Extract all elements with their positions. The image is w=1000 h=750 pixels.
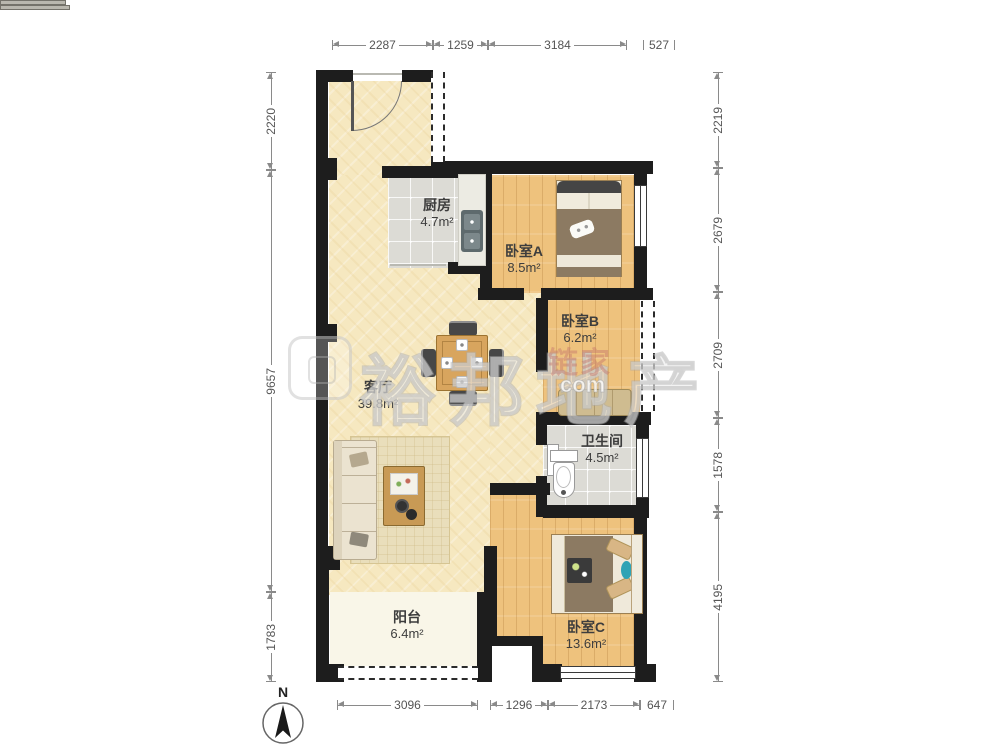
dashed-boundary — [641, 301, 655, 411]
dim-line — [574, 45, 626, 46]
dim-label: 1296 — [503, 698, 536, 712]
wall-corner — [634, 664, 656, 682]
dim-right-3: 2709 — [711, 292, 725, 418]
bed-band — [557, 255, 621, 267]
dim-line — [271, 593, 272, 621]
wall — [316, 180, 328, 550]
wall — [316, 566, 329, 678]
dim-line — [338, 705, 391, 706]
dim-label: 1783 — [264, 621, 278, 654]
dim-right-1: 2219 — [711, 72, 725, 168]
coffee-table-symbol — [383, 466, 425, 526]
dim-line — [399, 45, 432, 46]
dim-label: 2709 — [711, 339, 725, 372]
sofa-back — [334, 441, 342, 559]
dim-line — [271, 171, 272, 365]
dim-line — [718, 513, 719, 581]
dim-label: 1259 — [444, 38, 477, 52]
dim-left-3: 1783 — [264, 592, 278, 682]
toilet-symbol — [553, 462, 575, 498]
dim-label: 2220 — [264, 105, 278, 138]
dim-line — [477, 45, 487, 46]
headboard — [631, 535, 642, 613]
dashed-boundary — [431, 72, 445, 162]
room-name: 卧室C — [566, 618, 606, 636]
toilet-bowl — [556, 466, 571, 488]
window — [560, 666, 636, 679]
sliding-door-panel — [0, 5, 70, 10]
dim-line — [549, 705, 578, 706]
tray-symbol — [390, 473, 418, 495]
dim-left-2: 9657 — [264, 170, 278, 592]
floor-plan-canvas: 厨房 4.7m² 卧室A 8.5m² 卧室B 6.2m² 客厅 39.8m² 卫… — [0, 0, 1000, 750]
dim-line — [718, 246, 719, 291]
dim-line — [718, 371, 719, 417]
room-label-kitchen: 厨房 4.7m² — [420, 196, 453, 231]
bed-foot-band — [553, 536, 565, 612]
chair-symbol — [449, 391, 477, 406]
room-label-bedroom-b: 卧室B 6.2m² — [561, 312, 599, 347]
plate-symbol — [441, 357, 453, 369]
bed-pillows — [557, 193, 621, 209]
room-name: 卧室A — [505, 242, 543, 260]
dim-top-4: 527 — [643, 38, 675, 52]
room-label-bedroom-c: 卧室C 13.6m² — [566, 618, 606, 653]
room-name: 卧室B — [561, 312, 599, 330]
room-label-balcony: 阳台 6.4m² — [390, 608, 423, 643]
room-area: 6.2m² — [561, 330, 599, 347]
vase-symbol — [406, 509, 417, 520]
dim-right-4: 1578 — [711, 418, 725, 512]
dim-line — [718, 293, 719, 339]
dim-label: 4195 — [711, 581, 725, 614]
dim-line — [333, 45, 366, 46]
dim-line — [535, 705, 547, 706]
dim-line — [718, 169, 719, 214]
dim-line — [271, 653, 272, 681]
north-arrow-compass: N — [260, 684, 306, 750]
balcony-open-edge — [338, 666, 478, 680]
room-area: 13.6m² — [566, 636, 606, 653]
sink-basin — [464, 214, 480, 230]
room-name: 阳台 — [390, 608, 423, 626]
bed-tray-symbol — [567, 558, 592, 583]
north-label: N — [260, 684, 306, 700]
window — [634, 185, 647, 247]
room-area: 6.4m² — [390, 626, 423, 643]
exterior-notch — [492, 644, 532, 682]
plate-symbol — [456, 339, 468, 351]
dim-label: 3184 — [541, 38, 574, 52]
wall — [431, 161, 653, 174]
dim-line — [491, 705, 503, 706]
wall — [402, 70, 433, 82]
sofa-pillow — [349, 532, 369, 548]
dim-label: 1578 — [711, 449, 725, 482]
dim-line — [489, 45, 541, 46]
dim-label: 2173 — [578, 698, 611, 712]
room-name: 厨房 — [420, 196, 453, 214]
dim-right-5: 4195 — [711, 512, 725, 682]
bedroom-b-cabinet-symbol — [558, 389, 632, 416]
room-name: 卫生间 — [581, 432, 623, 450]
dim-bottom-2: 1296 — [490, 698, 548, 712]
wall — [536, 425, 547, 445]
dim-label: 2287 — [366, 38, 399, 52]
room-name: 客厅 — [358, 378, 398, 396]
dim-top-1: 2287 — [332, 38, 433, 52]
kitchen-door-threshold — [390, 264, 446, 266]
wall — [541, 288, 653, 300]
double-bed-symbol — [551, 534, 643, 614]
dim-line — [718, 481, 719, 511]
bed-symbol — [556, 180, 622, 277]
room-label-living: 客厅 39.8m² — [358, 378, 398, 413]
dim-line — [718, 73, 719, 104]
dim-tick — [266, 681, 276, 682]
room-label-bathroom: 卫生间 4.5m² — [581, 432, 623, 467]
door-threshold — [353, 73, 402, 75]
dim-tick — [673, 700, 674, 710]
dim-line — [434, 45, 444, 46]
dim-line — [610, 705, 639, 706]
entry-door-leaf — [351, 81, 354, 131]
chair-symbol — [421, 349, 436, 377]
room-area: 39.8m² — [358, 396, 398, 413]
wall-column — [316, 158, 337, 180]
compass-icon — [260, 700, 306, 746]
dim-line — [718, 419, 719, 449]
dim-label: 647 — [644, 698, 670, 712]
room-area: 8.5m² — [505, 260, 543, 277]
sofa-symbol — [333, 440, 377, 560]
dim-top-2: 1259 — [433, 38, 488, 52]
window — [636, 438, 649, 498]
chair-symbol — [449, 321, 477, 336]
headboard — [557, 181, 621, 193]
dim-line — [718, 613, 719, 681]
room-area: 4.7m² — [420, 214, 453, 231]
dim-line — [271, 73, 272, 105]
chair-symbol — [489, 349, 504, 377]
dim-label: 3096 — [391, 698, 424, 712]
wall — [478, 288, 524, 300]
dim-label: 2679 — [711, 214, 725, 247]
plate-symbol — [471, 357, 483, 369]
dim-label: 9657 — [264, 365, 278, 398]
sofa-pillow — [349, 451, 369, 467]
wall — [536, 298, 548, 372]
toilet-tank — [550, 450, 578, 462]
toilet-drain — [561, 490, 566, 495]
dim-tick — [626, 40, 627, 50]
dim-left-1: 2220 — [264, 72, 278, 170]
dim-line — [271, 137, 272, 169]
wall-column — [316, 324, 337, 342]
sink-basin — [464, 233, 480, 249]
room-area: 4.5m² — [581, 450, 623, 467]
dim-bottom-3: 2173 — [548, 698, 640, 712]
dim-label: 2219 — [711, 104, 725, 137]
dim-tick — [713, 681, 723, 682]
dim-line — [718, 136, 719, 167]
wall — [532, 636, 543, 682]
dim-tick — [643, 40, 644, 50]
room-label-bedroom-a: 卧室A 8.5m² — [505, 242, 543, 277]
dim-right-2: 2679 — [711, 168, 725, 292]
sink-symbol — [461, 210, 483, 252]
dim-bottom-1: 3096 — [337, 698, 478, 712]
dim-tick — [674, 40, 675, 50]
dim-line — [424, 705, 477, 706]
dim-label: 527 — [646, 38, 672, 52]
plate-symbol — [456, 376, 468, 388]
wall — [490, 483, 550, 495]
bed-band — [557, 267, 621, 277]
dim-bottom-4: 647 — [640, 698, 674, 712]
dim-tick — [477, 700, 478, 710]
dim-line — [271, 397, 272, 591]
dim-top-3: 3184 — [488, 38, 627, 52]
dim-tick — [640, 700, 641, 710]
